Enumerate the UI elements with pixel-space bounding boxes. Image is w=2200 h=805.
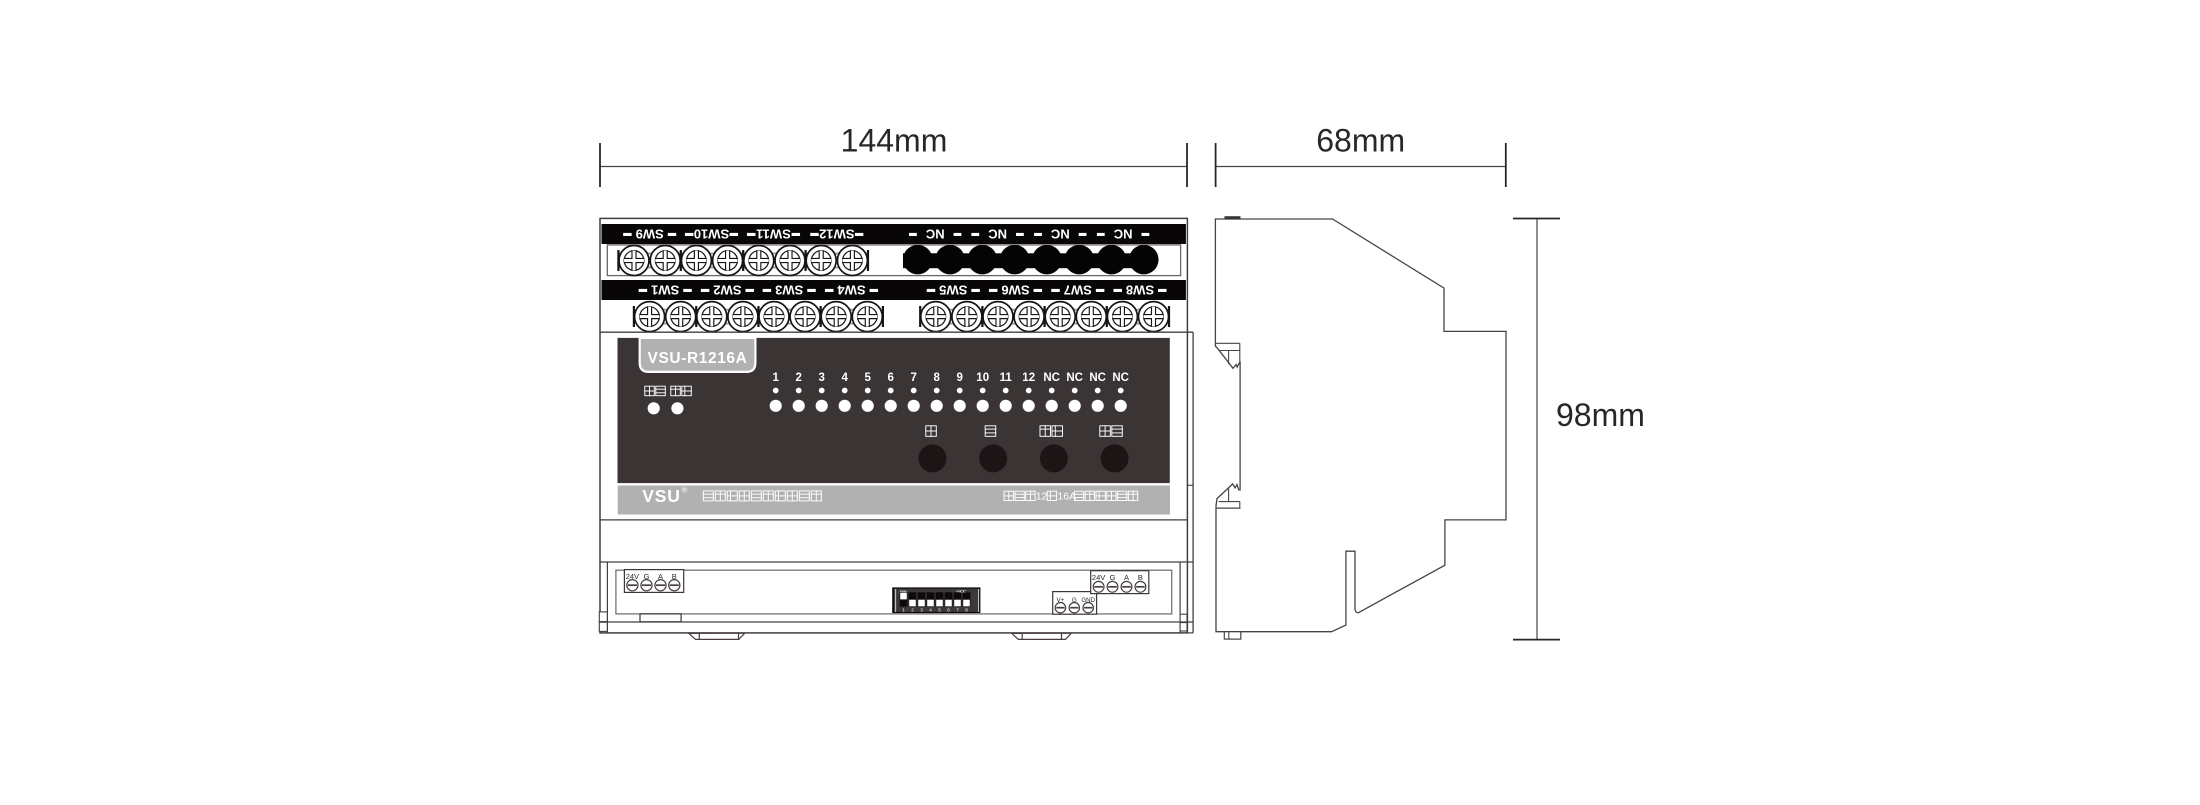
svg-text:G: G bbox=[1110, 573, 1116, 582]
svg-text:SW3: SW3 bbox=[775, 282, 803, 297]
svg-text:SW5: SW5 bbox=[939, 282, 967, 297]
svg-text:1: 1 bbox=[772, 372, 779, 384]
svg-text:68mm: 68mm bbox=[1316, 122, 1405, 158]
svg-text:3: 3 bbox=[920, 607, 923, 612]
svg-text:NC: NC bbox=[1112, 372, 1129, 384]
svg-text:6: 6 bbox=[947, 607, 950, 612]
svg-text:10: 10 bbox=[976, 372, 989, 384]
svg-text:12: 12 bbox=[1022, 372, 1035, 384]
svg-text:144mm: 144mm bbox=[841, 122, 948, 158]
svg-text:NC: NC bbox=[1113, 226, 1132, 241]
svg-text:3: 3 bbox=[818, 372, 824, 384]
svg-text:7: 7 bbox=[956, 607, 959, 612]
svg-text:SW11: SW11 bbox=[756, 226, 791, 241]
svg-text:SW4: SW4 bbox=[837, 282, 866, 297]
svg-text:24V: 24V bbox=[1092, 573, 1105, 582]
svg-text:®: ® bbox=[682, 486, 688, 495]
svg-text:4: 4 bbox=[841, 372, 848, 384]
svg-text:7: 7 bbox=[910, 372, 916, 384]
svg-text:NC: NC bbox=[925, 226, 944, 241]
svg-text:1: 1 bbox=[902, 607, 905, 612]
svg-text:SW2: SW2 bbox=[713, 282, 741, 297]
svg-text:NC: NC bbox=[1066, 372, 1083, 384]
svg-text:SW7: SW7 bbox=[1064, 282, 1092, 297]
svg-text:6: 6 bbox=[887, 372, 893, 384]
svg-text:8: 8 bbox=[933, 372, 940, 384]
svg-text:8: 8 bbox=[965, 607, 968, 612]
svg-text:SW1: SW1 bbox=[651, 282, 679, 297]
svg-text:4: 4 bbox=[929, 607, 932, 612]
svg-text:VSU-R1216A: VSU-R1216A bbox=[648, 350, 748, 367]
svg-text:98mm: 98mm bbox=[1556, 397, 1645, 433]
svg-text:SW10: SW10 bbox=[694, 226, 729, 241]
svg-text:2: 2 bbox=[911, 607, 914, 612]
svg-text:5: 5 bbox=[938, 607, 941, 612]
svg-text:5: 5 bbox=[864, 372, 871, 384]
svg-text:SW8: SW8 bbox=[1126, 282, 1154, 297]
svg-text:NC: NC bbox=[1089, 372, 1106, 384]
svg-text:NC: NC bbox=[988, 226, 1007, 241]
svg-text:A: A bbox=[1124, 573, 1129, 582]
svg-text:B: B bbox=[1138, 573, 1143, 582]
svg-text:2: 2 bbox=[795, 372, 801, 384]
svg-text:16A: 16A bbox=[1057, 491, 1076, 503]
svg-text:11: 11 bbox=[1000, 372, 1013, 384]
svg-text:12: 12 bbox=[1036, 491, 1048, 503]
svg-text:SW9: SW9 bbox=[636, 226, 664, 241]
svg-text:SW12: SW12 bbox=[819, 226, 854, 241]
svg-text:9: 9 bbox=[956, 372, 962, 384]
svg-text:VSU: VSU bbox=[642, 486, 680, 506]
svg-text:NC: NC bbox=[1050, 226, 1069, 241]
svg-text:NC: NC bbox=[1043, 372, 1060, 384]
svg-text:SW6: SW6 bbox=[1001, 282, 1029, 297]
